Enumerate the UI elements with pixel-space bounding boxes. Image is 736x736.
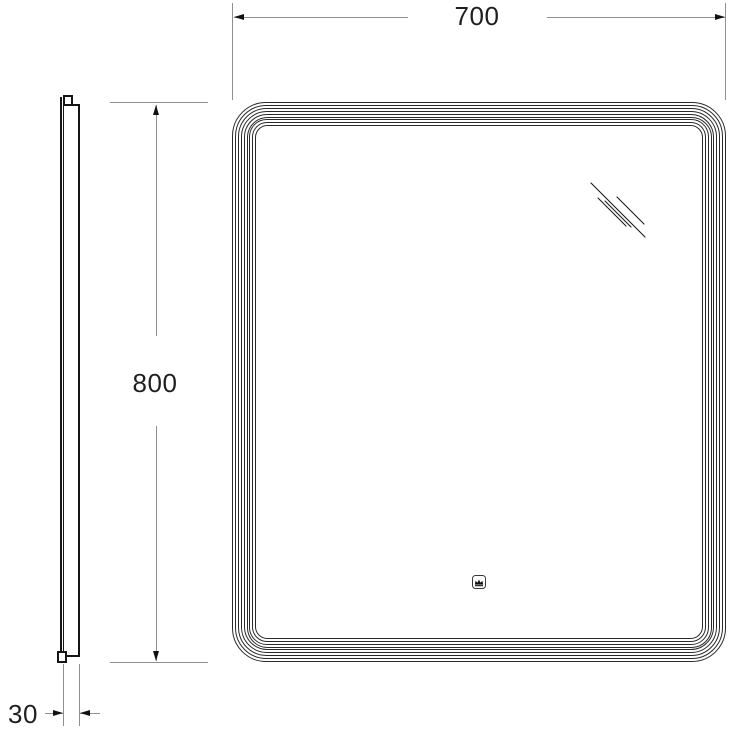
- depth-arrowhead-left: [53, 710, 63, 716]
- depth-arrowhead-right: [80, 710, 90, 716]
- side-view-top-bracket: [63, 95, 73, 106]
- height-dimension-label: 800: [131, 370, 180, 396]
- height-arrowhead-top: [153, 105, 159, 115]
- depth-dimension-label: 30: [6, 701, 40, 727]
- width-dimension-line-right-segment: [547, 17, 725, 18]
- depth-extension-line-right: [79, 664, 80, 726]
- crown-icon: [474, 578, 484, 587]
- touch-sensor-button: [472, 575, 486, 589]
- width-dimension-line-left-segment: [234, 17, 408, 18]
- mirror-front-view: [232, 102, 726, 662]
- width-dimension-label: 700: [453, 3, 502, 29]
- side-view-body: [64, 104, 80, 657]
- depth-extension-line-left: [63, 664, 64, 726]
- width-extension-line-left: [232, 3, 233, 100]
- height-dimension-line-bottom-segment: [156, 426, 157, 661]
- height-extension-line-top: [110, 102, 208, 103]
- height-dimension-line-top-segment: [156, 105, 157, 336]
- height-arrowhead-bottom: [153, 651, 159, 661]
- mirror-shine-icon: [585, 175, 655, 245]
- width-extension-line-right: [725, 3, 726, 100]
- width-arrowhead-left: [234, 14, 244, 20]
- mirror-technical-drawing: 700 800 30: [0, 0, 736, 736]
- height-extension-line-bottom: [110, 662, 208, 663]
- side-view-bottom-bracket: [57, 651, 67, 663]
- width-arrowhead-right: [715, 14, 725, 20]
